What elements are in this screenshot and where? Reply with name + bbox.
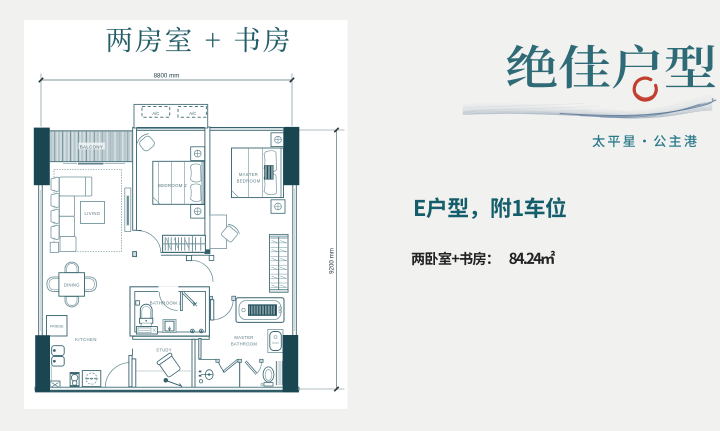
svg-text:DINING: DINING	[64, 283, 80, 288]
svg-text:BEDROOM: BEDROOM	[237, 179, 261, 184]
svg-text:KITCHEN: KITCHEN	[75, 337, 97, 342]
svg-text:BATHROOM 2: BATHROOM 2	[150, 301, 182, 306]
svg-text:BALCONY: BALCONY	[80, 144, 103, 149]
svg-text:FRIDGE: FRIDGE	[50, 325, 64, 329]
svg-text:BATHROOM: BATHROOM	[231, 342, 257, 347]
svg-text:9200 mm: 9200 mm	[329, 248, 336, 274]
svg-text:LIVING: LIVING	[85, 211, 101, 216]
svg-text:8800 mm: 8800 mm	[154, 73, 180, 80]
svg-text:STUDY: STUDY	[156, 348, 172, 353]
svg-text:A/C: A/C	[189, 111, 196, 116]
svg-text:MASTER: MASTER	[239, 172, 258, 177]
svg-text:BEDROOM 2: BEDROOM 2	[158, 183, 187, 188]
svg-text:MASTER: MASTER	[234, 335, 253, 340]
svg-text:A/C: A/C	[152, 111, 159, 116]
